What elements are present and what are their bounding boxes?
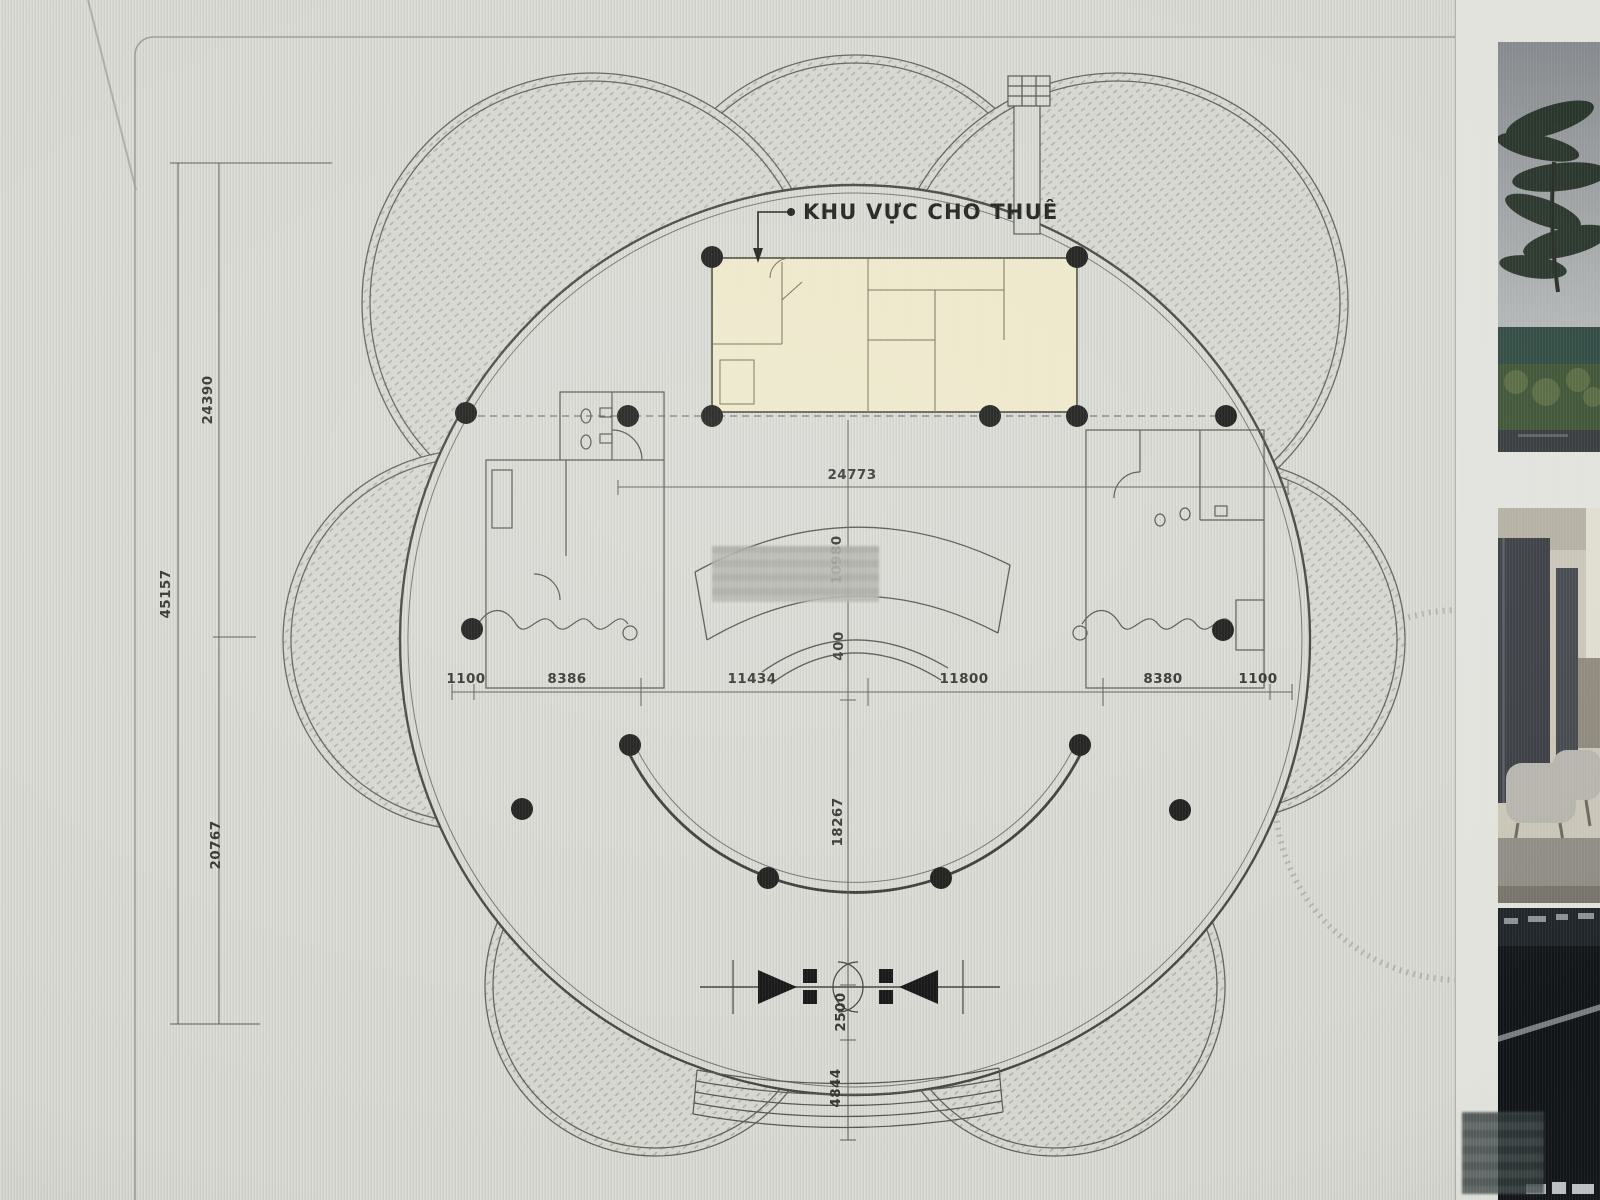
dim-bay-center-left: 11434 bbox=[728, 671, 777, 687]
dim-hall-width: 24773 bbox=[828, 467, 877, 483]
dim-bay-left-end: 1100 bbox=[446, 671, 485, 687]
lobby-interior-image bbox=[1498, 508, 1600, 903]
photo-watermark-blur bbox=[1462, 1112, 1544, 1194]
dim-bay-right: 8380 bbox=[1143, 671, 1182, 687]
dim-entrance-depth: 2500 bbox=[833, 992, 849, 1031]
dim-stage-gap: 400 bbox=[831, 631, 847, 660]
dim-hall-depth: 18267 bbox=[830, 798, 846, 847]
photo-thumbnail-palm-trees[interactable] bbox=[1498, 42, 1600, 452]
dim-bay-right-end: 1100 bbox=[1238, 671, 1277, 687]
dim-bay-center-right: 11800 bbox=[940, 671, 989, 687]
leased-area bbox=[712, 258, 1077, 412]
dim-total-height: 45157 bbox=[158, 570, 174, 619]
dim-bay-left: 8386 bbox=[547, 671, 586, 687]
leased-area-label: KHU VỰC CHO THUÊ bbox=[803, 199, 1058, 224]
palm-trees-image bbox=[1498, 42, 1600, 452]
dim-steps-depth: 4844 bbox=[828, 1068, 844, 1107]
dim-upper-height: 24390 bbox=[200, 376, 216, 425]
dim-lower-height: 20767 bbox=[208, 821, 224, 870]
monitor-screen: KHU VỰC CHO THUÊ bbox=[0, 0, 1600, 1200]
photo-thumbnail-lobby-interior[interactable] bbox=[1498, 508, 1600, 903]
center-watermark-blur bbox=[712, 546, 879, 602]
photo-gallery-strip bbox=[1455, 0, 1600, 1200]
